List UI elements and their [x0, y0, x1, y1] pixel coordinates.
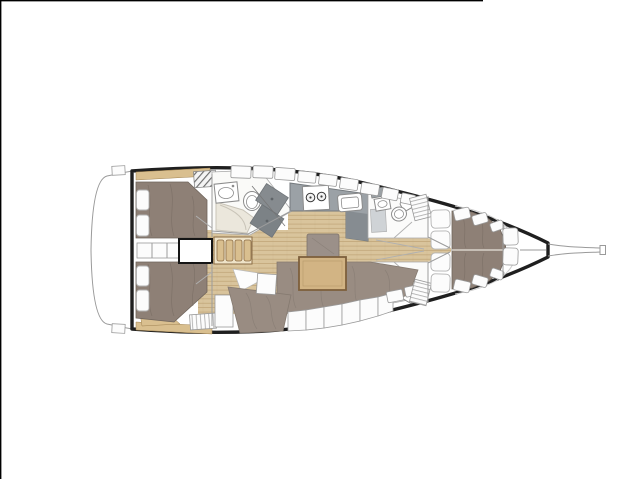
- hull-locker: [360, 182, 379, 196]
- cabin-bench: [215, 295, 233, 327]
- hull-locker: [253, 166, 273, 179]
- hull-locker: [231, 166, 251, 179]
- pillow: [431, 210, 451, 229]
- bench-segment: [324, 304, 342, 328]
- ladder-step: [217, 240, 224, 261]
- transom-locker: [112, 166, 125, 176]
- burner-center: [320, 195, 322, 197]
- bowsprit-lower-line: [548, 252, 601, 256]
- hull-locker: [318, 173, 337, 186]
- ladder-step: [235, 240, 242, 261]
- bench-segment: [360, 297, 378, 321]
- yacht-layout-plan: [0, 0, 640, 479]
- pillow: [137, 190, 150, 210]
- ladder-step: [244, 240, 251, 261]
- companionway-steps: [214, 237, 252, 264]
- bowsprit: [548, 244, 606, 256]
- galley-counter-return: [346, 211, 368, 241]
- bench-segment: [306, 307, 324, 330]
- ladder-step: [226, 240, 233, 261]
- transom-outline: [91, 171, 132, 329]
- pillow: [431, 253, 450, 271]
- stove: [302, 185, 329, 210]
- hull-locker: [275, 167, 296, 180]
- anchor-locker-hatch: [503, 248, 519, 266]
- pillow: [137, 215, 150, 236]
- shelf-box: [137, 243, 183, 258]
- faucet: [232, 185, 235, 188]
- engine-box: [179, 239, 212, 263]
- pillow: [431, 274, 451, 293]
- anchor-locker-hatch: [503, 228, 519, 246]
- divided-shelf: [137, 243, 183, 258]
- burner-center: [309, 196, 311, 198]
- shower-drain: [271, 198, 274, 201]
- bench-segment: [288, 310, 306, 331]
- shower-tile: [370, 209, 386, 233]
- hull-locker: [298, 171, 317, 184]
- washbasin: [214, 182, 239, 203]
- shower-drain: [266, 220, 269, 223]
- pillow: [137, 266, 150, 286]
- bench-segment: [342, 300, 360, 325]
- galley-sink: [337, 193, 362, 212]
- bowsprit-tip: [600, 246, 606, 255]
- corner-table: [256, 273, 276, 294]
- salon-table: [299, 257, 346, 290]
- floor-plan-svg: [0, 0, 640, 479]
- hull-locker: [339, 177, 358, 190]
- pillow: [137, 290, 150, 311]
- bowsprit-upper-line: [548, 244, 601, 248]
- transom-locker: [112, 324, 125, 334]
